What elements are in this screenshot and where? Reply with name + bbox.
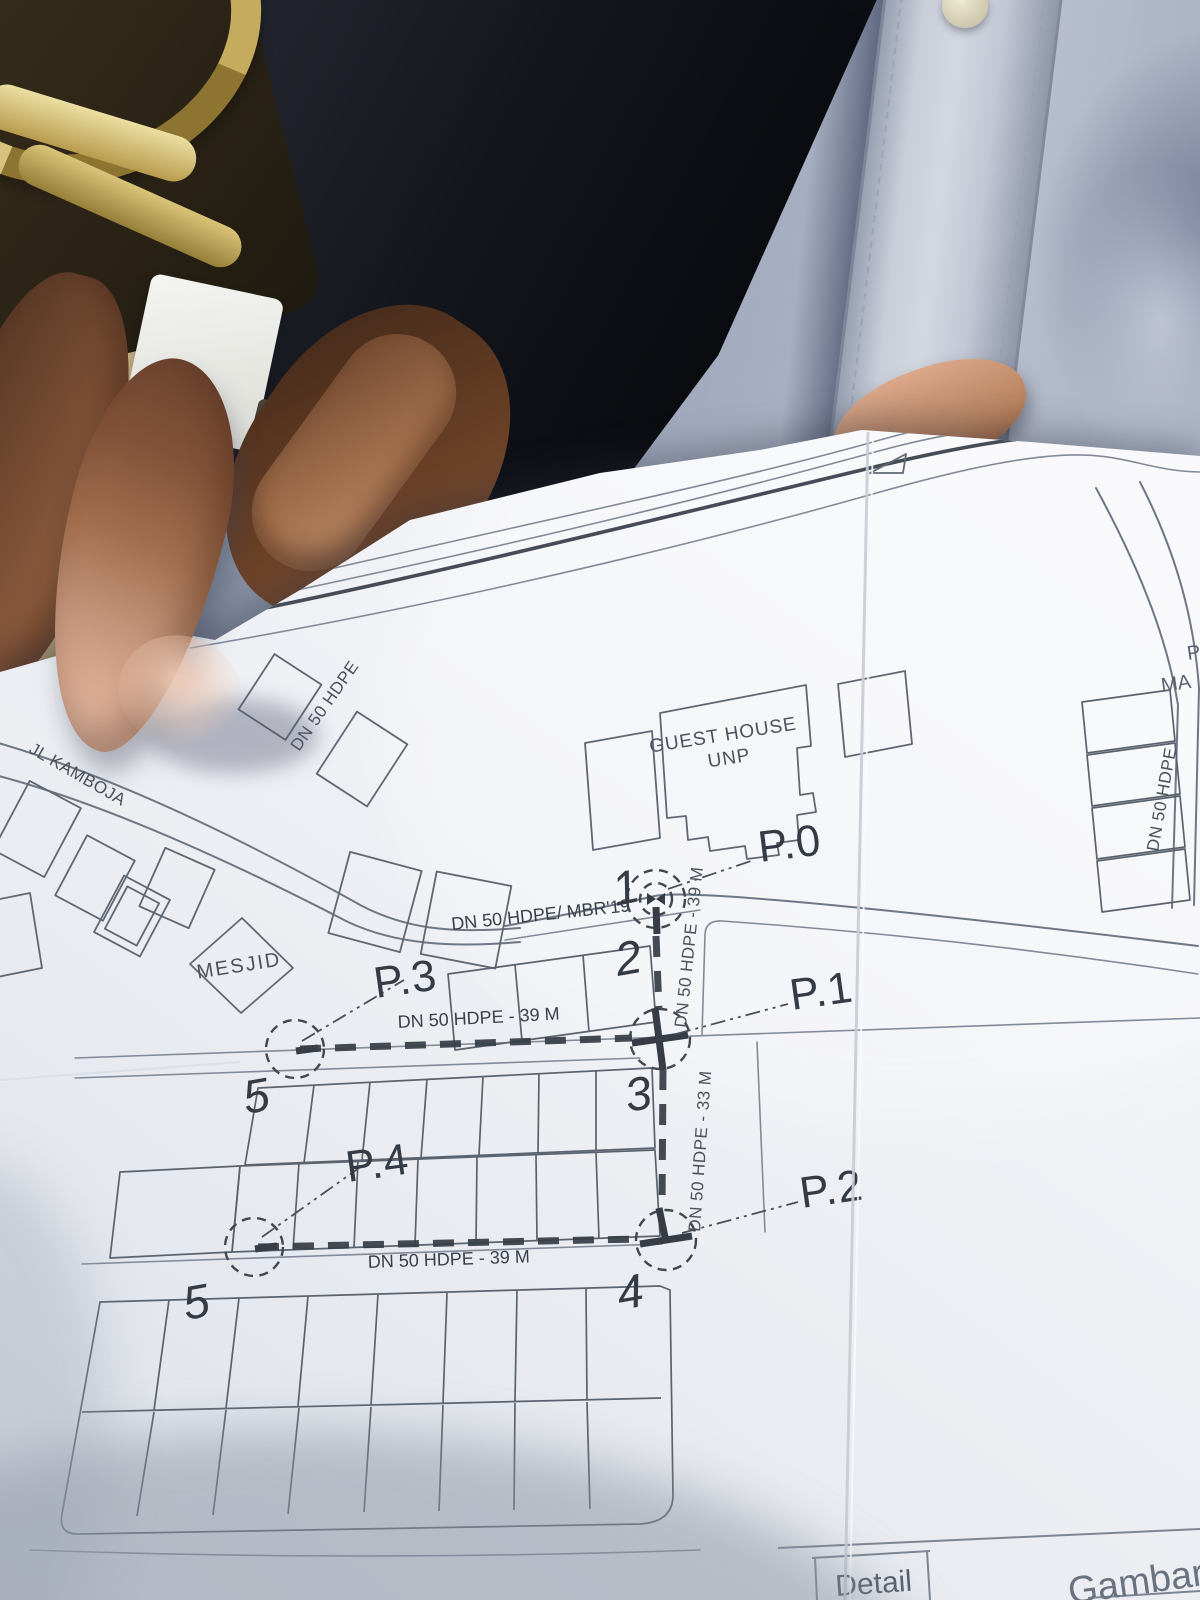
photo-scene: DN 50 HDPE JL KAMBOJA DN 50 HDPE/ MBR'19… (0, 0, 1200, 1600)
pipe-end-tick (296, 1048, 318, 1051)
point-label-p3: P.3 (371, 951, 441, 1008)
point-label-p0: P.0 (755, 816, 824, 872)
point-label-p1: P.1 (787, 963, 857, 1020)
edge-partial-text-2: MA (1160, 671, 1193, 697)
pipe-end-tick (255, 1246, 277, 1249)
point-label-p2: P.2 (797, 1161, 867, 1218)
blueprint-paper: DN 50 HDPE JL KAMBOJA DN 50 HDPE/ MBR'19… (0, 0, 1200, 1600)
valve-stub (656, 907, 657, 934)
edge-partial-text-1: P (1186, 641, 1200, 665)
point-label-p4: P.4 (343, 1135, 413, 1192)
